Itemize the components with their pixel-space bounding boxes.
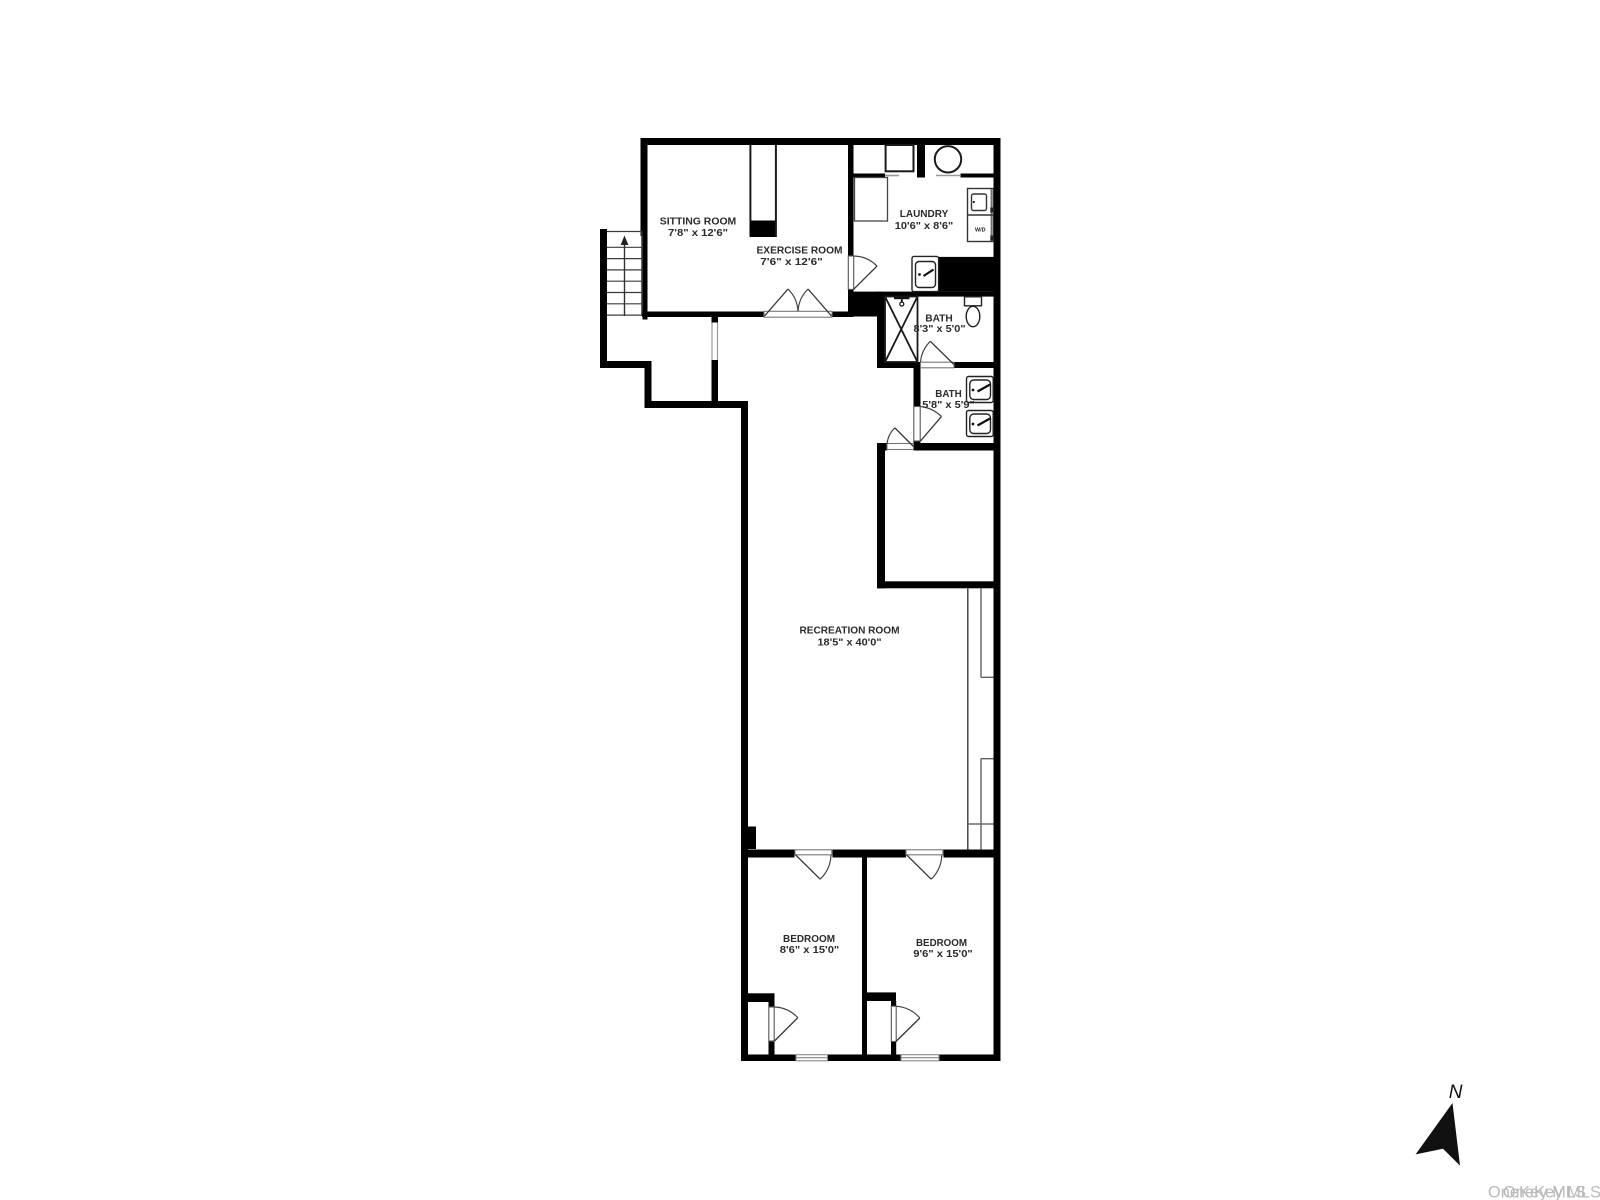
svg-text:BATH: BATH	[935, 389, 962, 400]
svg-text:7'6" x 12'6": 7'6" x 12'6"	[760, 257, 823, 268]
svg-text:BATH: BATH	[925, 314, 953, 325]
svg-text:SITTING ROOM: SITTING ROOM	[660, 217, 737, 228]
svg-text:LAUNDRY: LAUNDRY	[900, 209, 949, 220]
svg-text:8'3" x 5'0": 8'3" x 5'0"	[914, 324, 966, 335]
svg-text:BEDROOM: BEDROOM	[783, 934, 835, 945]
svg-text:8'6" x 15'0": 8'6" x 15'0"	[780, 945, 840, 956]
svg-text:W/D: W/D	[975, 228, 986, 234]
svg-text:BEDROOM: BEDROOM	[916, 938, 967, 949]
svg-text:9'6" x 15'0": 9'6" x 15'0"	[913, 949, 973, 960]
svg-text:10'6" x 8'6": 10'6" x 8'6"	[895, 221, 954, 232]
svg-text:5'8" x 5'9": 5'8" x 5'9"	[922, 400, 975, 411]
svg-text:7'8" x 12'6": 7'8" x 12'6"	[668, 228, 728, 239]
svg-text:OneKey MLS: OneKey MLS	[1488, 1184, 1586, 1200]
svg-text:N: N	[1449, 1082, 1463, 1103]
svg-text:RECREATION ROOM: RECREATION ROOM	[800, 626, 900, 637]
svg-text:EXERCISE ROOM: EXERCISE ROOM	[757, 246, 843, 257]
svg-text:18'5" x 40'0": 18'5" x 40'0"	[818, 638, 882, 649]
